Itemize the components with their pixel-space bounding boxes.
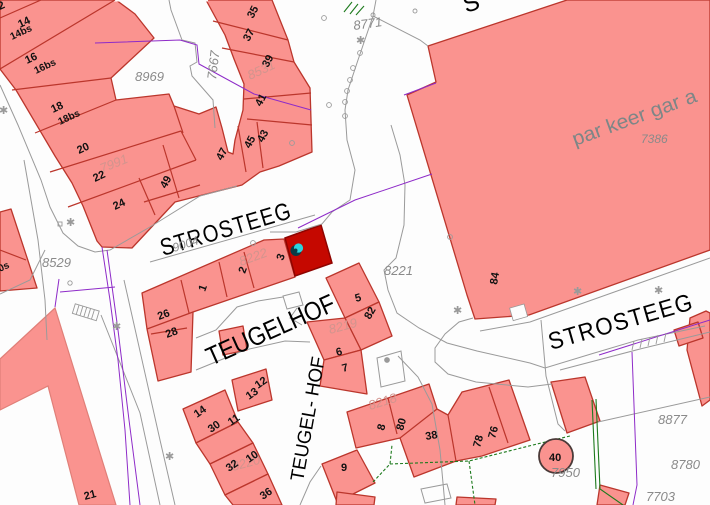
svg-text:9: 9: [341, 462, 347, 474]
svg-text:8780: 8780: [671, 457, 701, 472]
svg-text:✱: ✱: [165, 451, 174, 463]
svg-text:7386: 7386: [641, 132, 668, 146]
svg-text:✱: ✱: [66, 217, 75, 229]
svg-text:✱: ✱: [356, 35, 365, 47]
svg-text:✱: ✱: [0, 105, 8, 117]
svg-text:38: 38: [424, 429, 438, 443]
svg-text:8969: 8969: [135, 69, 164, 84]
svg-text:7703: 7703: [646, 489, 676, 504]
svg-text:7950: 7950: [551, 465, 581, 480]
svg-text:✱: ✱: [573, 286, 582, 298]
svg-text:40: 40: [549, 452, 561, 464]
svg-text:8529: 8529: [42, 255, 71, 270]
svg-text:✱: ✱: [112, 321, 121, 333]
svg-text:✱: ✱: [453, 305, 462, 317]
svg-text:8221: 8221: [384, 263, 413, 278]
svg-text:8877: 8877: [658, 412, 688, 427]
svg-text:✱: ✱: [654, 285, 663, 297]
